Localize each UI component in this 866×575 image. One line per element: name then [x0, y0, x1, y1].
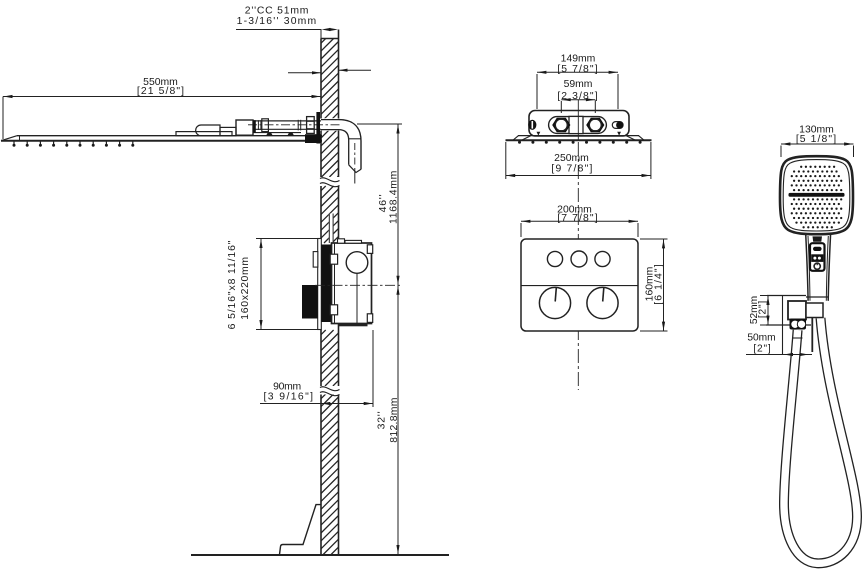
svg-text:59mm: 59mm	[564, 79, 593, 90]
svg-text:[5 1/8"]: [5 1/8"]	[796, 134, 837, 145]
svg-text:[21 5/8"]: [21 5/8"]	[137, 86, 185, 97]
svg-text:46'': 46''	[378, 194, 389, 213]
svg-text:149mm: 149mm	[561, 53, 596, 64]
svg-text:1-3/16'' 30mm: 1-3/16'' 30mm	[237, 16, 318, 27]
svg-text:[5 7/8"]: [5 7/8"]	[557, 64, 598, 75]
svg-text:1168.4mm: 1168.4mm	[388, 170, 399, 224]
svg-text:250mm: 250mm	[554, 153, 589, 164]
svg-text:[2"]: [2"]	[753, 344, 771, 355]
svg-text:812.8mm: 812.8mm	[389, 397, 400, 442]
svg-text:[9 7/8"]: [9 7/8"]	[551, 163, 593, 174]
svg-text:2''CC 51mm: 2''CC 51mm	[245, 5, 310, 16]
svg-text:[6 1/4"]: [6 1/4"]	[653, 263, 664, 304]
svg-text:50mm: 50mm	[747, 333, 775, 344]
svg-text:[7 7/8"]: [7 7/8"]	[557, 213, 598, 224]
svg-text:32'': 32''	[376, 411, 387, 430]
svg-text:6 5/16"x8 11/16": 6 5/16"x8 11/16"	[227, 240, 238, 330]
svg-text:[3 9/16"]: [3 9/16"]	[264, 391, 315, 402]
svg-text:160x220mm: 160x220mm	[240, 256, 251, 319]
